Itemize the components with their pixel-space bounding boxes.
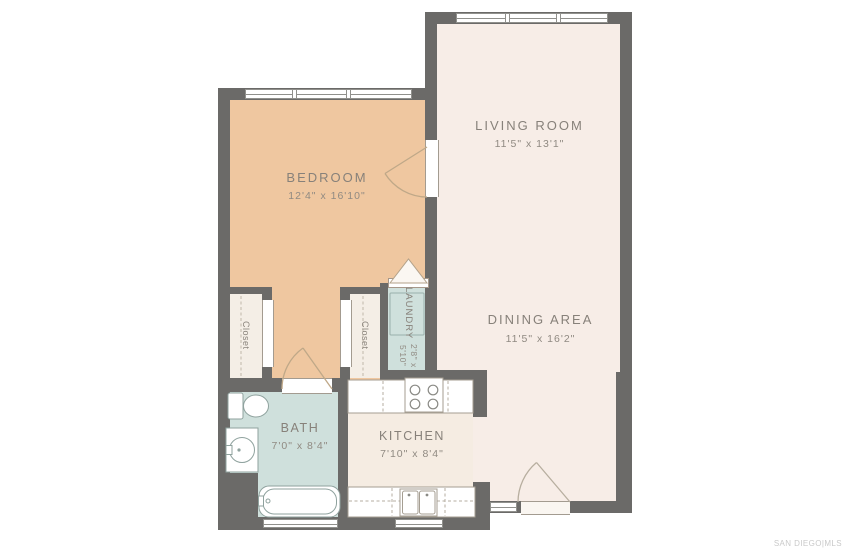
- closet-left-door-opening: [262, 300, 274, 367]
- wall-left: [218, 88, 230, 530]
- living-room-dims: 11'5" x 13'1": [437, 138, 622, 151]
- wall-dining-bottom-right: [570, 501, 632, 513]
- wall-bath-left-block: [218, 473, 258, 517]
- dining-area-label: DINING AREA: [448, 312, 633, 327]
- kitchen-label: KITCHEN: [352, 429, 472, 444]
- floor-plan: LIVING ROOM 11'5" x 13'1" BEDROOM 12'4" …: [0, 0, 847, 560]
- entry-sidelight-window: [490, 502, 517, 512]
- living-room-window: [456, 13, 608, 23]
- dining-area-dims: 11'5" x 16'2": [448, 333, 633, 346]
- bedroom-label: BEDROOM: [232, 170, 422, 185]
- living-room-label: LIVING ROOM: [437, 118, 622, 133]
- wall-bottom: [218, 517, 490, 530]
- mls-watermark: SAN DIEGO|MLS: [730, 539, 842, 548]
- entry-door-opening: [521, 501, 570, 515]
- closet-right-label: Closet: [350, 293, 380, 378]
- bedroom-window: [245, 89, 412, 99]
- bath-window: [263, 519, 338, 528]
- kitchen-window: [395, 519, 443, 528]
- bath-label: BATH: [258, 421, 342, 436]
- bedroom-dims: 12'4" x 16'10": [232, 190, 422, 203]
- wall-right: [620, 12, 632, 513]
- bath-dims: 7'0" x 8'4": [258, 440, 342, 453]
- wall-kitchen-right-upper: [473, 384, 487, 417]
- wall-bath-kitchen-divider: [338, 378, 348, 530]
- wall-right-jog: [616, 372, 620, 513]
- kitchen-dims: 7'10" x 8'4": [352, 448, 472, 461]
- laundry-label: LAUNDRY 2'8" x 5'10": [390, 287, 426, 373]
- wall-laundry-left: [380, 283, 388, 380]
- closet-left-label: Closet: [230, 293, 262, 378]
- bath-door-opening: [282, 378, 332, 394]
